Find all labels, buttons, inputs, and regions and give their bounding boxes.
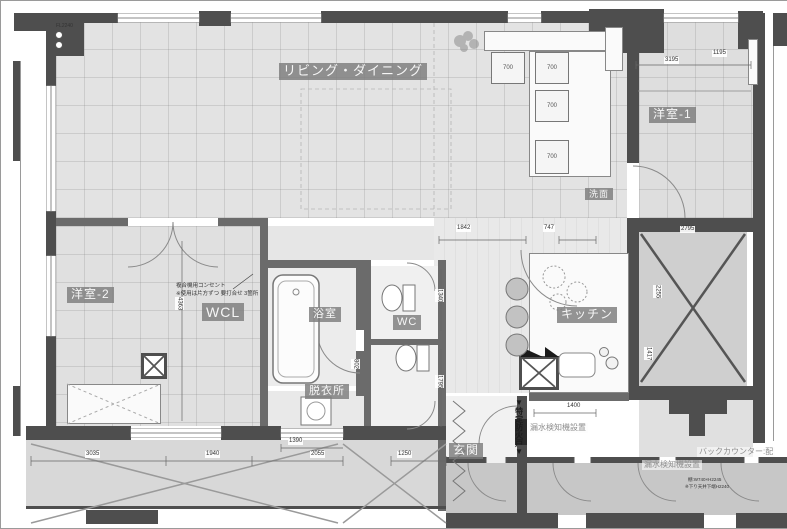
outlet-note-line1: 複合機用コンセント bbox=[176, 283, 226, 290]
faucet-icon bbox=[606, 357, 618, 369]
storage-cross-lines bbox=[67, 384, 161, 424]
leak-detector-note-2: 漏水検知機設置 bbox=[642, 460, 702, 470]
bathtub-icon bbox=[273, 275, 319, 383]
walk-in-closet-label: WCL bbox=[202, 303, 244, 321]
dressing-room-label: 脱衣所 bbox=[305, 384, 349, 399]
hatch-wedge-icon bbox=[545, 347, 559, 357]
bathroom-label: 浴室 bbox=[309, 307, 341, 322]
dim-802: 802 bbox=[351, 359, 360, 369]
dim-2255: 2255 bbox=[653, 285, 662, 298]
faucet-icon bbox=[600, 348, 609, 357]
storage-box-700-3: 700 bbox=[535, 90, 569, 122]
dim-1842: 1842 bbox=[456, 225, 471, 232]
storage-box-700-4: 700 bbox=[535, 140, 569, 174]
storage-box-700-1: 700 bbox=[491, 52, 525, 84]
plant-icon bbox=[454, 31, 479, 52]
stool-icons bbox=[506, 278, 528, 356]
stove-icon bbox=[543, 266, 587, 310]
dim-1390: 1390 bbox=[288, 438, 303, 445]
leak-detector-note-1: 漏水検知機設置 bbox=[528, 423, 588, 433]
dimension-lines bbox=[31, 61, 751, 466]
dim-2055: 2055 bbox=[310, 451, 325, 458]
door-jambs bbox=[486, 457, 759, 463]
storage-box-700-2: 700 bbox=[535, 52, 569, 84]
dim-1400: 1400 bbox=[566, 403, 581, 410]
kitchen-label: キッチン bbox=[557, 307, 617, 323]
shelf-note: 棚:W740×H2245 bbox=[688, 477, 721, 482]
entrance-label: 玄関 bbox=[449, 443, 483, 459]
washer-icon bbox=[301, 397, 331, 425]
dim-1417: 1417 bbox=[644, 347, 653, 360]
toilet-label: WC bbox=[393, 315, 421, 330]
terrace-cross-lines bbox=[641, 234, 745, 382]
plan-linework bbox=[1, 1, 787, 528]
back-counter-note: バックカウンター:配 bbox=[697, 447, 775, 457]
dim-1940: 1940 bbox=[205, 451, 220, 458]
door-arcs bbox=[128, 166, 759, 501]
living-dining-label: リビング・ダイニング bbox=[279, 63, 427, 80]
dim-1340: 1340 bbox=[435, 289, 444, 302]
sink-icon bbox=[559, 353, 595, 377]
module-dashed-lines bbox=[301, 23, 451, 216]
dim-1250: 1250 bbox=[397, 451, 412, 458]
washroom-label: 洗面 bbox=[585, 188, 613, 200]
pipe-shaft-x-icon bbox=[143, 355, 555, 387]
dim-1795: 1795 bbox=[435, 375, 444, 388]
fire-door-note: ▼特定防火戸▼ bbox=[514, 398, 524, 456]
dim-3195: 3195 bbox=[664, 57, 679, 64]
bedroom-1-label: 洋室-1 bbox=[649, 107, 696, 123]
dim-747: 747 bbox=[543, 225, 555, 232]
note-leader-line bbox=[233, 274, 253, 289]
dim-1195: 1195 bbox=[712, 50, 727, 57]
dim-2795: 2795 bbox=[680, 226, 695, 233]
outlet-note-line2: ※使用は片方ずつ 要打合せ 3箇所 bbox=[176, 291, 258, 298]
ceiling-note: ※下り天井下端H2240 bbox=[685, 484, 729, 489]
floor-level-note: FL2240 bbox=[56, 23, 73, 29]
bedroom-2-label: 洋室-2 bbox=[67, 287, 114, 303]
dim-4363: 4363 bbox=[175, 297, 184, 310]
dim-3035: 3035 bbox=[85, 451, 100, 458]
floor-plan: リビング・ダイニング洋室-1洋室-2WCL浴室脱衣所WCキッチン洗面玄関FL22… bbox=[0, 0, 787, 529]
